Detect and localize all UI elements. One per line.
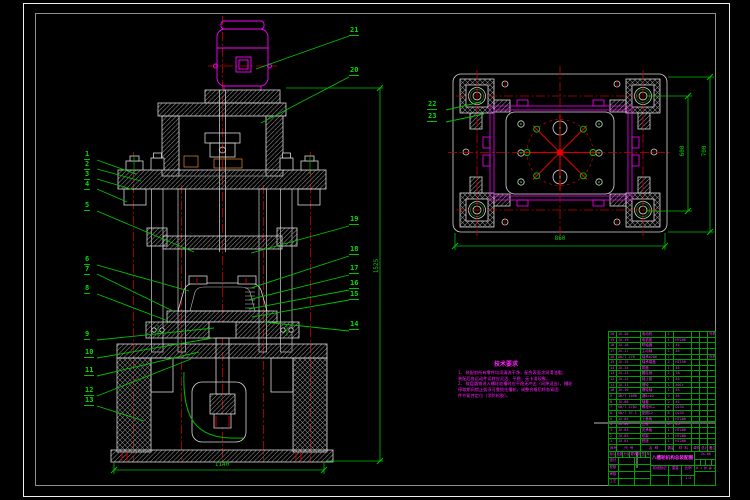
part-label: 13 — [84, 397, 94, 406]
tech-note-line: 件拧紧并定位（涂防松胶）。 — [458, 393, 554, 399]
part-label: 14 — [349, 321, 359, 330]
part-label: 18 — [349, 246, 359, 255]
part-label: 9 — [84, 331, 90, 340]
title-block-revision-area: 标记 处数 分区 更改文件号 签名 年月日 设计 校核 审核 — [608, 452, 650, 486]
title-block-middle: 八槽轮机构总装配图 阶段标记 重量 比例 1:2 — [650, 452, 694, 486]
part-label: 15 — [349, 291, 359, 300]
part-label: 11 — [84, 367, 94, 376]
dim-front-width: 1140 — [204, 462, 240, 468]
bom-table: 20 JX-20 电动机 1 外购 19 JX-19 电机座 1 HT200 — [608, 331, 716, 452]
title-block-right: JX-00 共 1 张 第 1 张 — [694, 452, 716, 486]
dim-top-inner: 600 — [680, 134, 686, 168]
drawing-number: JX-00 — [694, 452, 716, 460]
part-label: 22 — [427, 101, 437, 110]
dim-top-outer: 700 — [702, 134, 708, 168]
bom-header: 序号 代 号 名 称 数量 材 料 单件 总计 备注 — [608, 444, 715, 452]
tech-requirements: 技术要求 1. 装配前所有零件均须清洗干净，配合表面涂润滑油脂； 装配后各运动件… — [458, 359, 554, 399]
part-label: 19 — [349, 216, 359, 225]
tech-note-line: 停歇期间锁止弧须可靠锁住槽轮，调整合格后将各紧固 — [458, 387, 554, 393]
dim-top-width: 860 — [542, 236, 578, 242]
part-label: 8 — [84, 285, 90, 294]
part-label: 2 — [84, 161, 90, 170]
tech-requirements-title: 技术要求 — [458, 359, 554, 368]
part-label: 5 — [84, 202, 90, 211]
part-label: 23 — [427, 113, 437, 122]
part-label: 4 — [84, 181, 90, 190]
part-label: 16 — [349, 280, 359, 289]
part-label: 7 — [84, 266, 90, 275]
part-label: 21 — [349, 27, 359, 36]
tech-note-line: 1. 装配前所有零件均须清洗干净，配合表面涂润滑油脂； — [458, 370, 554, 376]
title-block: 标记 处数 分区 更改文件号 签名 年月日 设计 校核 审核 — [608, 452, 716, 486]
part-label: 3 — [84, 171, 90, 180]
part-label: 6 — [84, 256, 90, 265]
part-label: 10 — [84, 349, 94, 358]
part-label: 12 — [84, 387, 94, 396]
drawing-title: 八槽轮机构总装配图 — [650, 452, 694, 466]
cad-drawing-canvas: 1 2 3 4 5 6 7 8 9 10 11 12 13 14 15 — [0, 0, 750, 500]
dim-front-height: 1525 — [374, 249, 380, 283]
part-label: 1 — [84, 151, 90, 160]
part-label: 20 — [349, 67, 359, 76]
part-label: 17 — [349, 265, 359, 274]
